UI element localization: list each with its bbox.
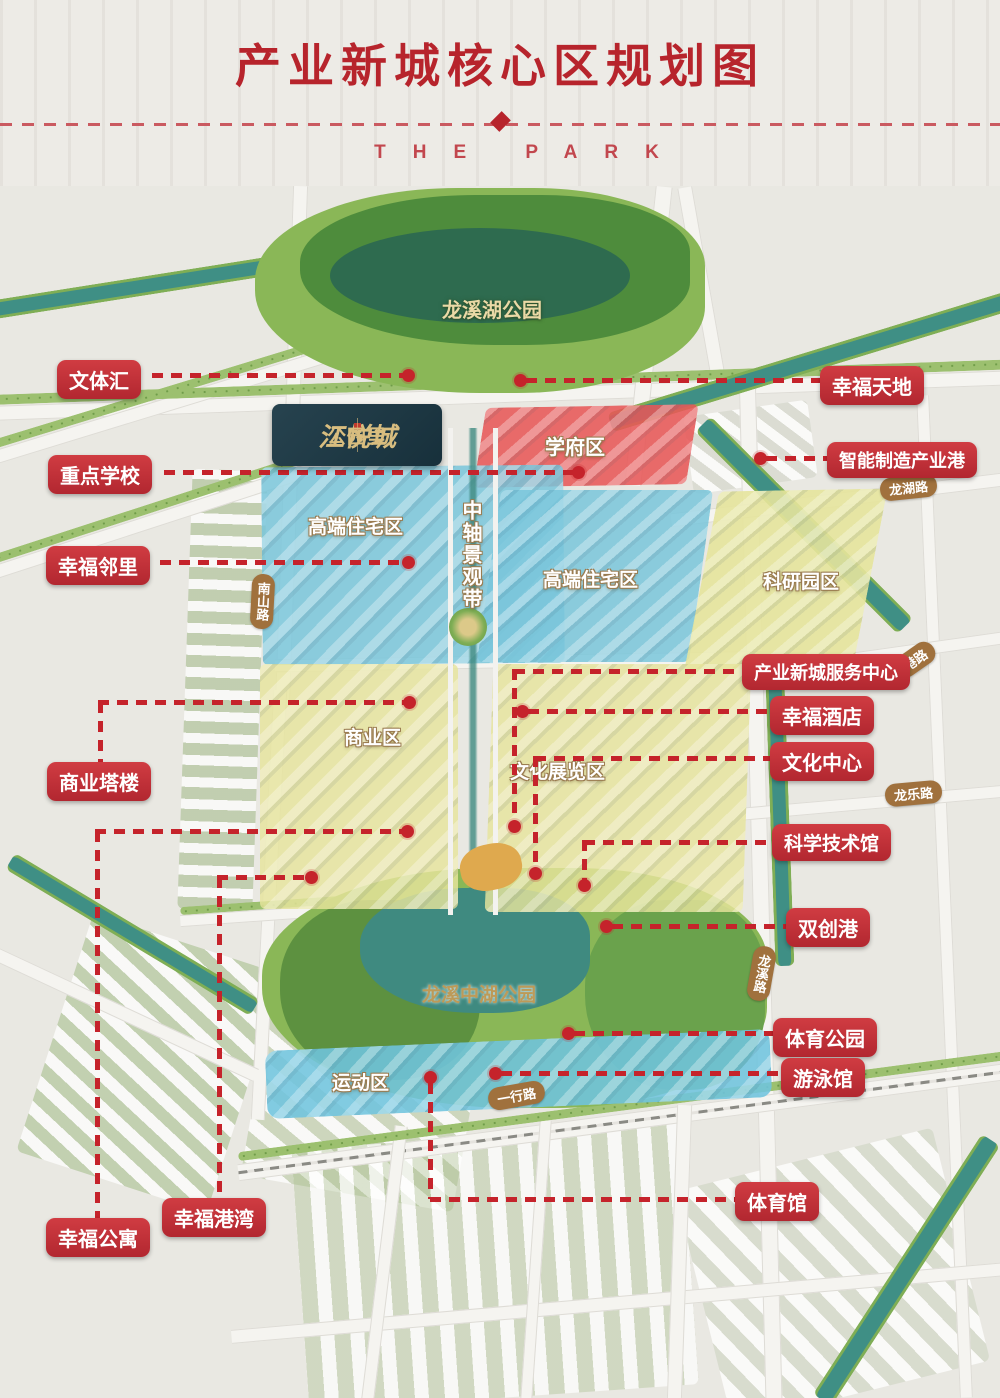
connector-wenhuazhongxin-v (533, 756, 538, 871)
target-dot-shuangchuanggang (600, 920, 613, 933)
callout-kexuejishuguan: 科学技术馆 (772, 824, 891, 861)
zone-label-gaoduan-west: 高端住宅区 (308, 512, 403, 539)
park-label-longxizhonghu: 龙溪中湖公园 (422, 980, 536, 1007)
connector-xingfujiudian (528, 709, 770, 714)
connector-kexuejishuguan-h (584, 840, 772, 845)
connector-xingfutiandi (526, 378, 822, 383)
target-dot-zhongdianxuexiao (572, 466, 585, 479)
connector-xingfugangwan-h (217, 875, 311, 880)
connector-shangyetalou-v (98, 702, 103, 762)
residential-blocks-west-column (177, 469, 267, 911)
city-blocks-southeast (675, 1128, 990, 1398)
connector-xingfugongyu-h (95, 829, 407, 834)
callout-xingfulinli: 幸福邻里 (46, 546, 150, 585)
callout-zhinenggang: 智能制造产业港 (827, 442, 977, 478)
park-label-longxihu: 龙溪湖公园 (442, 294, 542, 323)
target-dot-zhinenggang (754, 452, 767, 465)
target-dot-shangyetalou (403, 696, 416, 709)
connector-fuwuzhongxin-h (514, 669, 742, 674)
central-axis-fountain (449, 608, 487, 646)
connector-tiyuguan-h (430, 1197, 735, 1202)
zone-label-central-axis: 中轴景观带 (456, 500, 485, 610)
target-dot-xingfugongyu (401, 825, 414, 838)
target-dot-kexuejishuguan (578, 879, 591, 892)
target-dot-fuwuzhongxin (508, 820, 521, 833)
target-dot-youyongguan (489, 1067, 502, 1080)
callout-zhongdianxuexiao: 重点学校 (48, 455, 152, 494)
logo-sub-name: 公园里 (327, 422, 387, 449)
callout-xingfugongyu: 幸福公寓 (46, 1218, 150, 1257)
connector-youyongguan (501, 1071, 781, 1076)
zone-label-gaoduan-east: 高端住宅区 (543, 565, 638, 592)
connector-tiyugongyuan (574, 1031, 773, 1036)
callout-tiyugongyuan: 体育公园 (773, 1018, 877, 1057)
zone-label-xuefuqu: 学府区 (545, 431, 605, 460)
zone-wenhuazhanlanqu (485, 664, 752, 912)
callout-fuwuzhongxin: 产业新城服务中心 (742, 654, 910, 690)
connector-kexuejishuguan-v (582, 840, 587, 883)
road-pill-nanshanlu: 南山路 (250, 573, 276, 629)
master-plan-map: 学府区 高端住宅区 高端住宅区 科研园区 商业区 文化展览区 运动区 中轴景观带… (0, 186, 1000, 1398)
page-title: 产业新城核心区规划图 (0, 30, 1000, 96)
page-subtitle: THE PARK (30, 142, 1000, 164)
connector-shuangchuanggang (612, 924, 786, 929)
connector-xingfugangwan-v (217, 877, 222, 1200)
connector-wenhuazhongxin-h (535, 756, 770, 761)
callout-wentihui: 文体汇 (57, 360, 141, 399)
target-dot-tiyuguan (424, 1071, 437, 1084)
callout-tiyuguan: 体育馆 (735, 1182, 819, 1221)
connector-wentihui (152, 373, 404, 378)
callout-shangyetalou: 商业塔楼 (47, 762, 151, 801)
target-dot-xingfujiudian (516, 705, 529, 718)
callout-xingfutiandi: 幸福天地 (820, 366, 924, 405)
target-dot-wentihui (402, 369, 415, 382)
connector-xingfugongyu-v (95, 831, 100, 1220)
callout-youyongguan: 游泳馆 (781, 1058, 865, 1097)
callout-shuangchuanggang: 双创港 (786, 908, 870, 947)
connector-shangyetalou-h (98, 700, 409, 705)
poster-header: 产业新城核心区规划图 THE PARK (0, 0, 1000, 186)
zone-label-yundongqu: 运动区 (332, 1068, 389, 1095)
zone-label-keyanyuanqu: 科研园区 (763, 567, 839, 594)
connector-tiyuguan-v (428, 1083, 433, 1199)
connector-xingfulinli (160, 560, 403, 565)
callout-xingfujiudian: 幸福酒店 (770, 696, 874, 735)
target-dot-xingfugangwan (305, 871, 318, 884)
project-logo: 江悦城 公园里 (272, 404, 442, 466)
diamond-ornament-icon (490, 111, 511, 132)
connector-fuwuzhongxin-v (512, 669, 517, 824)
zone-label-shangyequ: 商业区 (344, 723, 401, 750)
target-dot-xingfutiandi (514, 374, 527, 387)
target-dot-xingfulinli (402, 556, 415, 569)
connector-zhinenggang (766, 456, 828, 461)
callout-xingfugangwan: 幸福港湾 (162, 1198, 266, 1237)
zone-label-wenhuazhanlanqu: 文化展览区 (510, 757, 605, 784)
target-dot-wenhuazhongxin (529, 867, 542, 880)
callout-wenhuazhongxin: 文化中心 (770, 742, 874, 781)
planning-poster: 产业新城核心区规划图 THE PARK (0, 0, 1000, 1398)
target-dot-tiyugongyuan (562, 1027, 575, 1040)
connector-zhongdianxuexiao (164, 470, 574, 475)
